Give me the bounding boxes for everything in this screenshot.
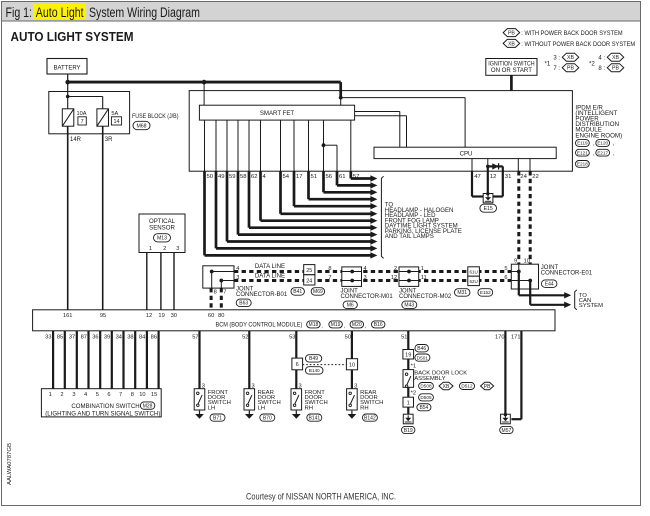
svg-text:5: 5 bbox=[96, 392, 99, 398]
svg-text:M69: M69 bbox=[313, 289, 323, 295]
svg-text:57: 57 bbox=[192, 335, 198, 341]
svg-text:SYSTEM: SYSTEM bbox=[579, 303, 603, 309]
svg-text:3 :: 3 : bbox=[553, 56, 560, 62]
svg-text:DATA LINE: DATA LINE bbox=[255, 273, 285, 280]
svg-text:12: 12 bbox=[490, 174, 497, 180]
svg-text:14R: 14R bbox=[70, 137, 82, 143]
svg-text:4: 4 bbox=[236, 266, 239, 272]
svg-text:170: 170 bbox=[495, 335, 505, 341]
svg-text:CONNECTOR-M01: CONNECTOR-M01 bbox=[341, 294, 394, 300]
svg-text:E120: E120 bbox=[597, 141, 608, 146]
svg-text:D512: D512 bbox=[461, 384, 473, 389]
svg-text:FUSE BLOCK (J/B): FUSE BLOCK (J/B) bbox=[132, 114, 179, 120]
svg-text:6: 6 bbox=[296, 362, 299, 368]
svg-text:10A: 10A bbox=[77, 111, 87, 117]
svg-text:47: 47 bbox=[474, 174, 481, 180]
svg-text:84: 84 bbox=[139, 335, 145, 341]
svg-text:10: 10 bbox=[349, 362, 355, 368]
svg-text:D501: D501 bbox=[417, 355, 429, 360]
svg-text:B16: B16 bbox=[374, 322, 383, 328]
svg-text:E121: E121 bbox=[577, 150, 588, 155]
svg-text:36: 36 bbox=[92, 335, 98, 341]
svg-text:XB: XB bbox=[508, 41, 515, 47]
svg-text:50: 50 bbox=[345, 335, 351, 341]
svg-text:CONNECTOR-E01: CONNECTOR-E01 bbox=[541, 271, 593, 277]
svg-text:4: 4 bbox=[364, 266, 367, 272]
svg-text:10: 10 bbox=[524, 258, 530, 264]
svg-text:37: 37 bbox=[69, 335, 75, 341]
svg-text:58: 58 bbox=[240, 174, 247, 180]
svg-text:B140: B140 bbox=[309, 368, 320, 373]
svg-text:B49: B49 bbox=[309, 356, 318, 362]
svg-text:49: 49 bbox=[218, 174, 225, 180]
svg-text:XB: XB bbox=[567, 55, 574, 61]
svg-text:1: 1 bbox=[49, 392, 52, 398]
svg-text:34: 34 bbox=[116, 335, 122, 341]
svg-text:161: 161 bbox=[63, 313, 73, 319]
svg-text:SENSOR: SENSOR bbox=[149, 224, 175, 231]
svg-text:B70: B70 bbox=[263, 415, 272, 421]
svg-text:M6: M6 bbox=[347, 303, 354, 309]
svg-text:3: 3 bbox=[236, 275, 239, 281]
svg-text:4 :: 4 : bbox=[598, 56, 605, 62]
svg-text:M68: M68 bbox=[136, 123, 146, 129]
svg-text:CPU: CPU bbox=[460, 150, 473, 157]
svg-text:CONNECTOR-B01: CONNECTOR-B01 bbox=[236, 292, 288, 298]
svg-text:E217: E217 bbox=[597, 150, 608, 155]
svg-text:31: 31 bbox=[505, 174, 512, 180]
svg-text:: WITH POWER BACK DOOR SYSTEM: : WITH POWER BACK DOOR SYSTEM bbox=[521, 30, 622, 37]
svg-text:3: 3 bbox=[176, 246, 179, 252]
svg-text:PB: PB bbox=[484, 384, 491, 390]
svg-text:,: , bbox=[593, 151, 594, 157]
svg-text:15: 15 bbox=[151, 392, 157, 398]
svg-text:54: 54 bbox=[283, 174, 290, 180]
svg-text:CONNECTOR-M02: CONNECTOR-M02 bbox=[399, 294, 452, 300]
svg-text:E218: E218 bbox=[577, 162, 588, 167]
svg-text:3R: 3R bbox=[105, 137, 113, 143]
svg-text:6: 6 bbox=[107, 392, 110, 398]
svg-text:7: 7 bbox=[328, 275, 331, 281]
svg-text:62: 62 bbox=[251, 174, 258, 180]
svg-text:5A: 5A bbox=[111, 111, 118, 117]
svg-text:B19: B19 bbox=[404, 428, 413, 434]
svg-text:M18: M18 bbox=[309, 322, 319, 328]
svg-text:56: 56 bbox=[326, 174, 333, 180]
svg-text:: WITHOUT POWER BACK DOOR SYST: : WITHOUT POWER BACK DOOR SYSTEM bbox=[521, 41, 635, 48]
svg-text:2: 2 bbox=[163, 246, 166, 252]
svg-text:62U: 62U bbox=[469, 279, 477, 284]
svg-text:B71: B71 bbox=[213, 415, 222, 421]
svg-text:1: 1 bbox=[149, 246, 152, 252]
svg-text:AND TAIL LAMPS: AND TAIL LAMPS bbox=[385, 233, 434, 240]
svg-text:SMART FET: SMART FET bbox=[260, 110, 295, 117]
svg-text:3: 3 bbox=[364, 275, 367, 281]
svg-text:B63: B63 bbox=[239, 301, 248, 307]
svg-text:*2: *2 bbox=[411, 391, 416, 397]
svg-text:AUTO LIGHT SYSTEM: AUTO LIGHT SYSTEM bbox=[11, 29, 134, 44]
svg-text:8: 8 bbox=[131, 392, 134, 398]
svg-text:12: 12 bbox=[391, 275, 397, 281]
svg-text:B46: B46 bbox=[417, 346, 426, 352]
svg-text:24: 24 bbox=[520, 174, 527, 180]
svg-text:50: 50 bbox=[207, 174, 214, 180]
svg-text:PB: PB bbox=[508, 30, 515, 36]
svg-text:2: 2 bbox=[60, 392, 63, 398]
svg-text:85: 85 bbox=[57, 335, 63, 341]
svg-text:B141: B141 bbox=[308, 415, 320, 421]
svg-text:171: 171 bbox=[511, 335, 521, 341]
svg-text:51: 51 bbox=[401, 335, 407, 341]
svg-text:D505: D505 bbox=[420, 395, 432, 400]
svg-text:D508: D508 bbox=[420, 384, 432, 389]
svg-text:59: 59 bbox=[229, 174, 236, 180]
svg-text:33: 33 bbox=[45, 335, 51, 341]
svg-text:61U: 61U bbox=[469, 270, 477, 275]
svg-text:4: 4 bbox=[84, 392, 87, 398]
svg-text:39: 39 bbox=[104, 335, 110, 341]
svg-text:8 :: 8 : bbox=[598, 66, 605, 72]
svg-text:Fig 1:: Fig 1: bbox=[6, 5, 33, 20]
svg-text:*1: *1 bbox=[411, 363, 416, 369]
svg-text:LH: LH bbox=[208, 405, 216, 411]
svg-text:8: 8 bbox=[214, 289, 217, 295]
svg-text:7: 7 bbox=[119, 392, 122, 398]
svg-text:E44: E44 bbox=[545, 282, 554, 288]
svg-text:2: 2 bbox=[394, 266, 397, 272]
svg-text:RH: RH bbox=[360, 405, 369, 411]
svg-text:PB: PB bbox=[567, 66, 574, 72]
svg-text:M31: M31 bbox=[457, 290, 467, 296]
svg-text:10: 10 bbox=[139, 392, 145, 398]
svg-text:51: 51 bbox=[311, 174, 318, 180]
svg-text:M28: M28 bbox=[143, 403, 153, 409]
svg-text:ENGINE ROOM): ENGINE ROOM) bbox=[575, 132, 622, 139]
svg-text:87: 87 bbox=[81, 335, 87, 341]
svg-text:,: , bbox=[613, 141, 614, 147]
svg-text:PB: PB bbox=[612, 66, 619, 72]
svg-text:86: 86 bbox=[151, 335, 157, 341]
svg-text:7: 7 bbox=[81, 119, 84, 125]
svg-text:14: 14 bbox=[114, 119, 120, 125]
svg-text:22: 22 bbox=[532, 174, 539, 180]
svg-text:ON OR START: ON OR START bbox=[491, 67, 532, 74]
svg-text:E152: E152 bbox=[480, 290, 491, 295]
svg-text:BCM (BODY CONTROL MODULE): BCM (BODY CONTROL MODULE) bbox=[216, 321, 303, 328]
svg-text:E15: E15 bbox=[484, 206, 493, 212]
svg-text:B142: B142 bbox=[364, 415, 376, 421]
svg-text:30: 30 bbox=[171, 313, 177, 319]
svg-text:E119: E119 bbox=[577, 141, 588, 146]
svg-text:38: 38 bbox=[127, 335, 133, 341]
svg-text:60: 60 bbox=[208, 313, 214, 319]
svg-text:25: 25 bbox=[306, 268, 312, 274]
svg-text:,: , bbox=[593, 141, 594, 147]
svg-text:8: 8 bbox=[328, 266, 331, 272]
svg-text:12: 12 bbox=[146, 313, 152, 319]
svg-text:XB: XB bbox=[443, 384, 450, 390]
svg-text:61: 61 bbox=[339, 174, 346, 180]
svg-text:17: 17 bbox=[296, 174, 303, 180]
svg-text:Auto Light: Auto Light bbox=[36, 5, 84, 20]
svg-text:M57: M57 bbox=[502, 428, 512, 434]
svg-text:ASSEMBLY: ASSEMBLY bbox=[414, 376, 445, 382]
svg-text:B41: B41 bbox=[293, 289, 302, 295]
svg-text:95: 95 bbox=[100, 313, 106, 319]
svg-text:19: 19 bbox=[158, 313, 164, 319]
svg-text:1: 1 bbox=[407, 401, 410, 407]
svg-text:5: 5 bbox=[504, 266, 507, 272]
svg-text:RH: RH bbox=[305, 405, 314, 411]
svg-text:,: , bbox=[613, 151, 614, 157]
svg-text:DATA LINE: DATA LINE bbox=[255, 263, 285, 270]
svg-text:B54: B54 bbox=[419, 405, 428, 411]
svg-text:*1: *1 bbox=[545, 61, 551, 68]
svg-text:3: 3 bbox=[72, 392, 75, 398]
svg-text:53: 53 bbox=[289, 335, 295, 341]
svg-text:9: 9 bbox=[514, 258, 517, 264]
svg-text:System Wiring Diagram: System Wiring Diagram bbox=[89, 5, 200, 20]
svg-text:24: 24 bbox=[306, 278, 312, 284]
svg-text:M19: M19 bbox=[331, 322, 341, 328]
svg-text:XB: XB bbox=[612, 55, 619, 61]
svg-text:LH: LH bbox=[258, 405, 266, 411]
svg-text:80: 80 bbox=[218, 313, 224, 319]
svg-text:1: 1 bbox=[421, 266, 424, 272]
svg-text:COMBINATION SWITCH: COMBINATION SWITCH bbox=[71, 403, 139, 410]
svg-text:7 :: 7 : bbox=[553, 66, 560, 72]
svg-text:19: 19 bbox=[405, 353, 411, 359]
svg-text:Courtesy of NISSAN NORTH AMERI: Courtesy of NISSAN NORTH AMERICA, INC. bbox=[246, 492, 396, 502]
svg-text:,: , bbox=[344, 324, 345, 330]
svg-text:,: , bbox=[321, 324, 322, 330]
svg-text:AALWA0787GB: AALWA0787GB bbox=[7, 443, 13, 485]
svg-text:M20: M20 bbox=[352, 322, 362, 328]
svg-text:BATTERY: BATTERY bbox=[53, 65, 80, 71]
svg-text:,: , bbox=[365, 324, 366, 330]
svg-text:52: 52 bbox=[242, 335, 248, 341]
svg-text:M13: M13 bbox=[157, 236, 167, 242]
svg-text:(LIGHTING AND TURN SIGNAL SWIT: (LIGHTING AND TURN SIGNAL SWITCH) bbox=[45, 410, 160, 417]
svg-text:*2: *2 bbox=[589, 61, 595, 68]
svg-text:6: 6 bbox=[504, 275, 507, 281]
svg-text:M43: M43 bbox=[404, 303, 414, 309]
svg-text:11: 11 bbox=[421, 275, 427, 281]
svg-text:7: 7 bbox=[223, 289, 226, 295]
